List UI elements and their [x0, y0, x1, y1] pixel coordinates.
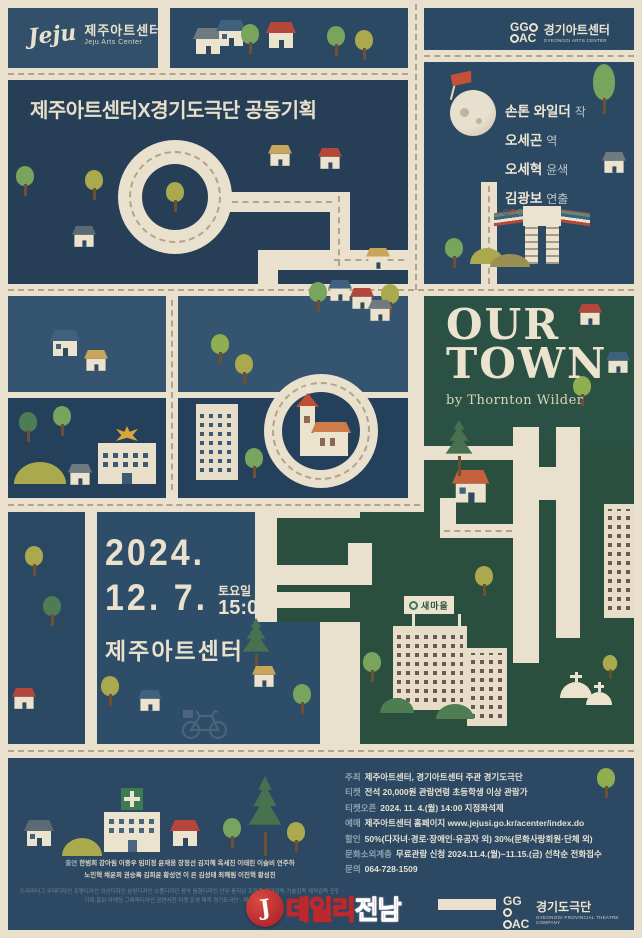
ggtc-name-en: GYEONGGI PROVINCIAL THEATRE COMPANY — [536, 915, 642, 925]
ggac-mark: GG AC — [510, 22, 538, 45]
house-icon — [12, 688, 36, 709]
ggtc-logo: GG AC 경기도극단 GYEONGGI PROVINCIAL THEATRE … — [503, 896, 642, 930]
ggac-name-en: GYEONGGI ARTS CENTER — [544, 38, 610, 43]
road-dash — [171, 300, 173, 490]
schedule-venue: 제주아트센터 — [105, 632, 269, 666]
jeju-script-mark: Jeju — [27, 20, 78, 51]
info-host: 주최제주아트센터, 경기아트센터 주관 경기도극단 — [345, 770, 635, 785]
title-line2: TOWN — [446, 345, 607, 384]
credit-adaptation: 오세혁윤색 — [505, 158, 586, 178]
road-dash — [424, 55, 634, 57]
house-icon — [366, 248, 390, 269]
tree-icon — [474, 566, 494, 596]
info-ticket-open: 티켓오픈2024. 11. 4.(월) 14:00 지정좌석제 — [345, 801, 635, 816]
tree-icon — [444, 238, 464, 268]
letter-bar-right — [556, 427, 580, 638]
block-left-column — [8, 512, 85, 744]
house-icon — [602, 152, 626, 173]
tree-icon — [24, 546, 44, 576]
tree-icon — [326, 26, 346, 56]
house-icon — [24, 820, 54, 846]
tree-icon — [354, 30, 374, 60]
house-icon — [68, 464, 92, 485]
title-our-town: OUR TOWN by Thornton Wilder — [446, 306, 607, 408]
credit-author: 손톤 와일더작 — [505, 100, 586, 120]
title-byline: by Thornton Wilder — [446, 393, 607, 408]
letter-crossbar — [539, 467, 556, 500]
church-icon — [292, 392, 350, 466]
road-dash — [8, 504, 420, 506]
info-contact: 문의064-728-1509 — [345, 862, 635, 877]
cast-line1: 출연한범희 강아림 이중우 임미정 윤재웅 장정선 김지혜 옥세진 이태린 이슬… — [25, 858, 335, 870]
tree-icon — [18, 412, 38, 442]
pine-tree-icon — [445, 420, 473, 476]
road-dash — [444, 530, 512, 532]
tree-icon — [286, 822, 306, 852]
road-dash — [8, 750, 634, 752]
tree-icon — [240, 24, 260, 54]
school-building-icon — [96, 426, 158, 484]
pine-tree-icon — [248, 776, 282, 856]
road-dash — [338, 196, 340, 266]
house-icon — [138, 690, 162, 711]
info-discount: 할인50%(다자녀·경로·장애인·유공자 외) 30%(문화사랑회원·단체 외) — [345, 832, 635, 847]
schedule-date: 12. 7. — [105, 577, 208, 619]
house-icon — [170, 820, 200, 846]
house-icon — [318, 148, 342, 169]
tree-icon — [100, 676, 120, 706]
saemaul-sign-text: 새마을 — [421, 599, 449, 612]
house-icon — [268, 145, 292, 166]
jeju-arts-center-logo: Jeju 제주아트센터 Jeju Arts Center — [28, 22, 162, 48]
letter-arm2 — [277, 592, 350, 608]
road-dash — [488, 186, 490, 284]
block-mid-left — [8, 296, 166, 392]
schedule-year: 2024. — [105, 532, 269, 574]
tree-icon — [234, 354, 254, 384]
tree-icon — [15, 166, 35, 196]
road-dash — [232, 201, 332, 203]
house-icon — [50, 330, 80, 356]
co-production-title: 제주아트센터X경기도극단 공동기획 — [30, 94, 316, 123]
watermark-logo-icon: J — [246, 889, 284, 927]
ggac-logo: GG AC 경기아트센터 GYEONGGI ARTS CENTER — [510, 22, 610, 45]
daily-jeonnam-watermark: J 데일리전남 — [246, 889, 401, 927]
tree-icon — [362, 652, 382, 682]
jeju-logo-en: Jeju Arts Center — [84, 39, 162, 46]
schedule: 2024. 12. 7. 토요일 15:00 제주아트센터 — [105, 534, 269, 666]
info-booking: 예매제주아트센터 홈페이지 www.jejusi.go.kr/acenter/i… — [345, 816, 635, 831]
tree-icon — [244, 448, 264, 478]
house-icon — [328, 280, 352, 301]
road-dash — [8, 73, 408, 75]
saemaul-logo-icon — [409, 601, 418, 610]
ggtc-name-kr: 경기도극단 — [536, 901, 642, 913]
house-icon — [606, 352, 630, 373]
tree-icon — [210, 334, 230, 364]
apartment-icon — [393, 626, 467, 710]
house-icon — [72, 226, 96, 247]
tree-icon — [292, 684, 312, 714]
poster: Jeju 제주아트센터 Jeju Arts Center GG AC 경기아트센… — [0, 0, 642, 938]
tree-icon — [42, 596, 62, 626]
tree-icon — [165, 182, 185, 212]
moon-icon — [450, 90, 496, 136]
letter-vbar — [348, 543, 372, 585]
production-credits: 손톤 와일더작 오세곤역 오세혁윤색 김광보연출 — [505, 100, 586, 216]
watermark-text1: 데일리 — [286, 895, 355, 925]
credit-translator: 오세곤역 — [505, 129, 586, 149]
ggac-name-kr: 경기아트센터 — [544, 24, 610, 36]
cast-line2: 노민혁 채윤희 권승록 김희윤 황성연 이 은 김성태 최혜림 이진혁 황성진 — [25, 870, 335, 882]
tree-icon — [602, 655, 618, 679]
house-icon — [84, 350, 108, 371]
cast-credits: 출연한범희 강아림 이중우 임미정 윤재웅 장정선 김지혜 옥세진 이태린 이슬… — [25, 858, 335, 882]
sign-post — [412, 614, 415, 626]
watermark-text2: 전남 — [355, 895, 401, 925]
house-icon — [368, 300, 392, 321]
schedule-day: 토요일 — [218, 584, 269, 598]
info-ticket: 티켓전석 20,000원 관람연령 초등학생 이상 관람가 — [345, 785, 635, 800]
apartment-icon — [604, 504, 634, 618]
ggtc-mark: GG AC — [503, 896, 530, 930]
bicycle-icon — [180, 704, 228, 745]
tree-icon — [592, 64, 616, 114]
credit-director: 김광보연출 — [505, 187, 586, 207]
tree-icon — [84, 170, 104, 200]
hospital-icon — [104, 788, 160, 852]
letter-bar-left — [513, 427, 539, 663]
house-icon — [252, 666, 276, 687]
tree-icon — [52, 406, 72, 436]
tree-icon — [308, 282, 328, 312]
sign-post — [458, 614, 461, 626]
info-free-program: 문화소외계층무료관람 신청 2024.11.4.(월)~11.15.(금) 선착… — [345, 847, 635, 862]
house-icon — [266, 22, 296, 48]
schedule-time: 15:00 — [218, 598, 269, 618]
road-bottom-bar — [438, 899, 496, 910]
tree-icon — [222, 818, 242, 848]
saemaul-sign: 새마을 — [404, 596, 454, 614]
road-dash — [415, 4, 417, 290]
performance-info: 주최제주아트센터, 경기아트센터 주관 경기도극단 티켓전석 20,000원 관… — [345, 770, 635, 878]
apartment-icon — [196, 404, 238, 480]
jeju-logo-kr: 제주아트센터 — [84, 24, 162, 38]
road-serpentine-v2 — [258, 250, 278, 289]
